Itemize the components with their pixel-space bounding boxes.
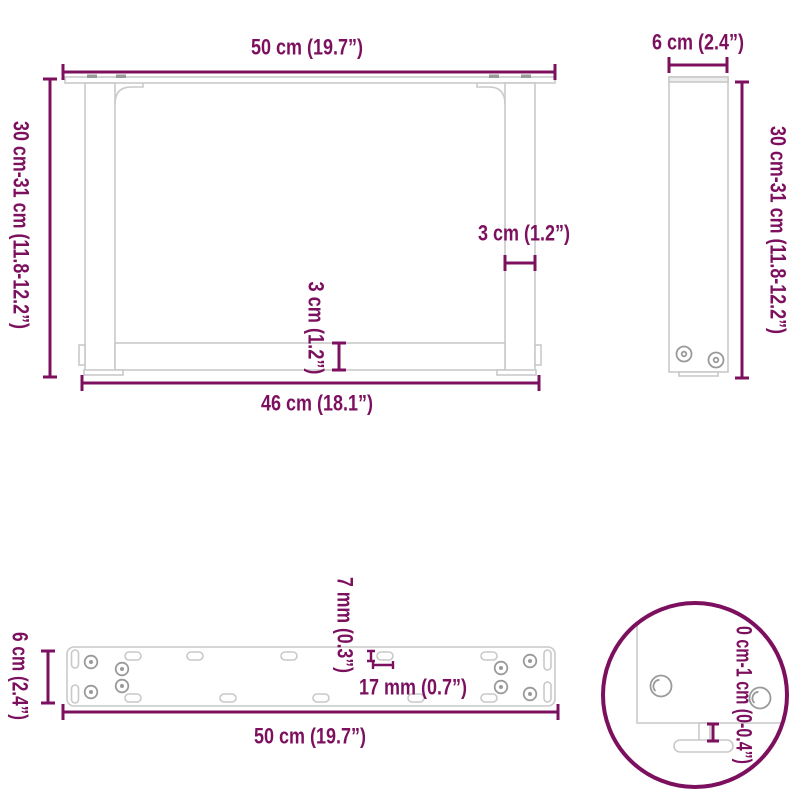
plate-depth-label: 6 cm (2.4”) [8,632,33,720]
right-leveler-pin [535,345,541,365]
dimension-diagram-page: 50 cm (19.7”) 30 cm-31 cm (11.8-12.2”) 3… [0,0,800,800]
plate-width-label: 50 cm (19.7”) [254,724,366,749]
side-depth-label: 6 cm (2.4”) [652,30,744,55]
side-top-plate [669,77,728,82]
plate-hole-length-label: 17 mm (0.7”) [359,675,467,700]
side-height-dimension [735,82,749,378]
foot-pad [674,740,733,752]
table-top-plate [65,77,555,83]
side-leg-body [669,77,728,372]
front-crossbar-label: 3 cm (1.2”) [304,282,329,375]
side-view: 6 cm (2.4”) 30 cm-31 cm (11.8-12.2”) [652,30,791,379]
plate-hole-width-label: 7 mm (0.3”) [333,577,358,673]
left-leg [85,83,115,371]
detail-circle [603,603,787,787]
front-view: 50 cm (19.7”) 30 cm-31 cm (11.8-12.2”) 3… [9,35,571,416]
front-height-dimension [43,79,57,377]
front-inner-width-label: 46 cm (18.1”) [261,391,373,416]
dimension-diagram: 50 cm (19.7”) 30 cm-31 cm (11.8-12.2”) 3… [0,0,800,800]
plate-hole-mark [87,75,97,79]
front-inner-width-dimension [82,375,539,391]
foot-adjust-label: 0 cm-1 cm (0-0.4”) [732,626,757,764]
side-height-label: 30 cm-31 cm (11.8-12.2”) [766,126,791,334]
plate-hole-mark [521,75,531,79]
foot-stem [699,723,710,741]
plate-view: 6 cm (2.4”) 7 mm (0.3”) 17 mm (0.7”) 50 … [8,577,559,749]
left-leveler-pin [79,345,85,365]
right-foot [497,370,536,375]
plate-depth-dimension [41,651,55,703]
front-leg-thickness-label: 3 cm (1.2”) [478,221,570,246]
side-depth-dimension [669,57,727,73]
front-height-label: 30 cm-31 cm (11.8-12.2”) [9,121,34,329]
right-leg-bracket [477,83,505,104]
side-foot [679,372,718,376]
detail-view: 0 cm-1 cm (0-0.4”) [603,600,790,787]
plate-hole-mark [489,75,499,79]
left-foot [84,370,123,375]
detail-screw-icon [651,676,672,697]
front-width-label: 50 cm (19.7”) [251,35,363,60]
left-leg-bracket [115,83,143,104]
plate-hole-mark [116,75,126,79]
